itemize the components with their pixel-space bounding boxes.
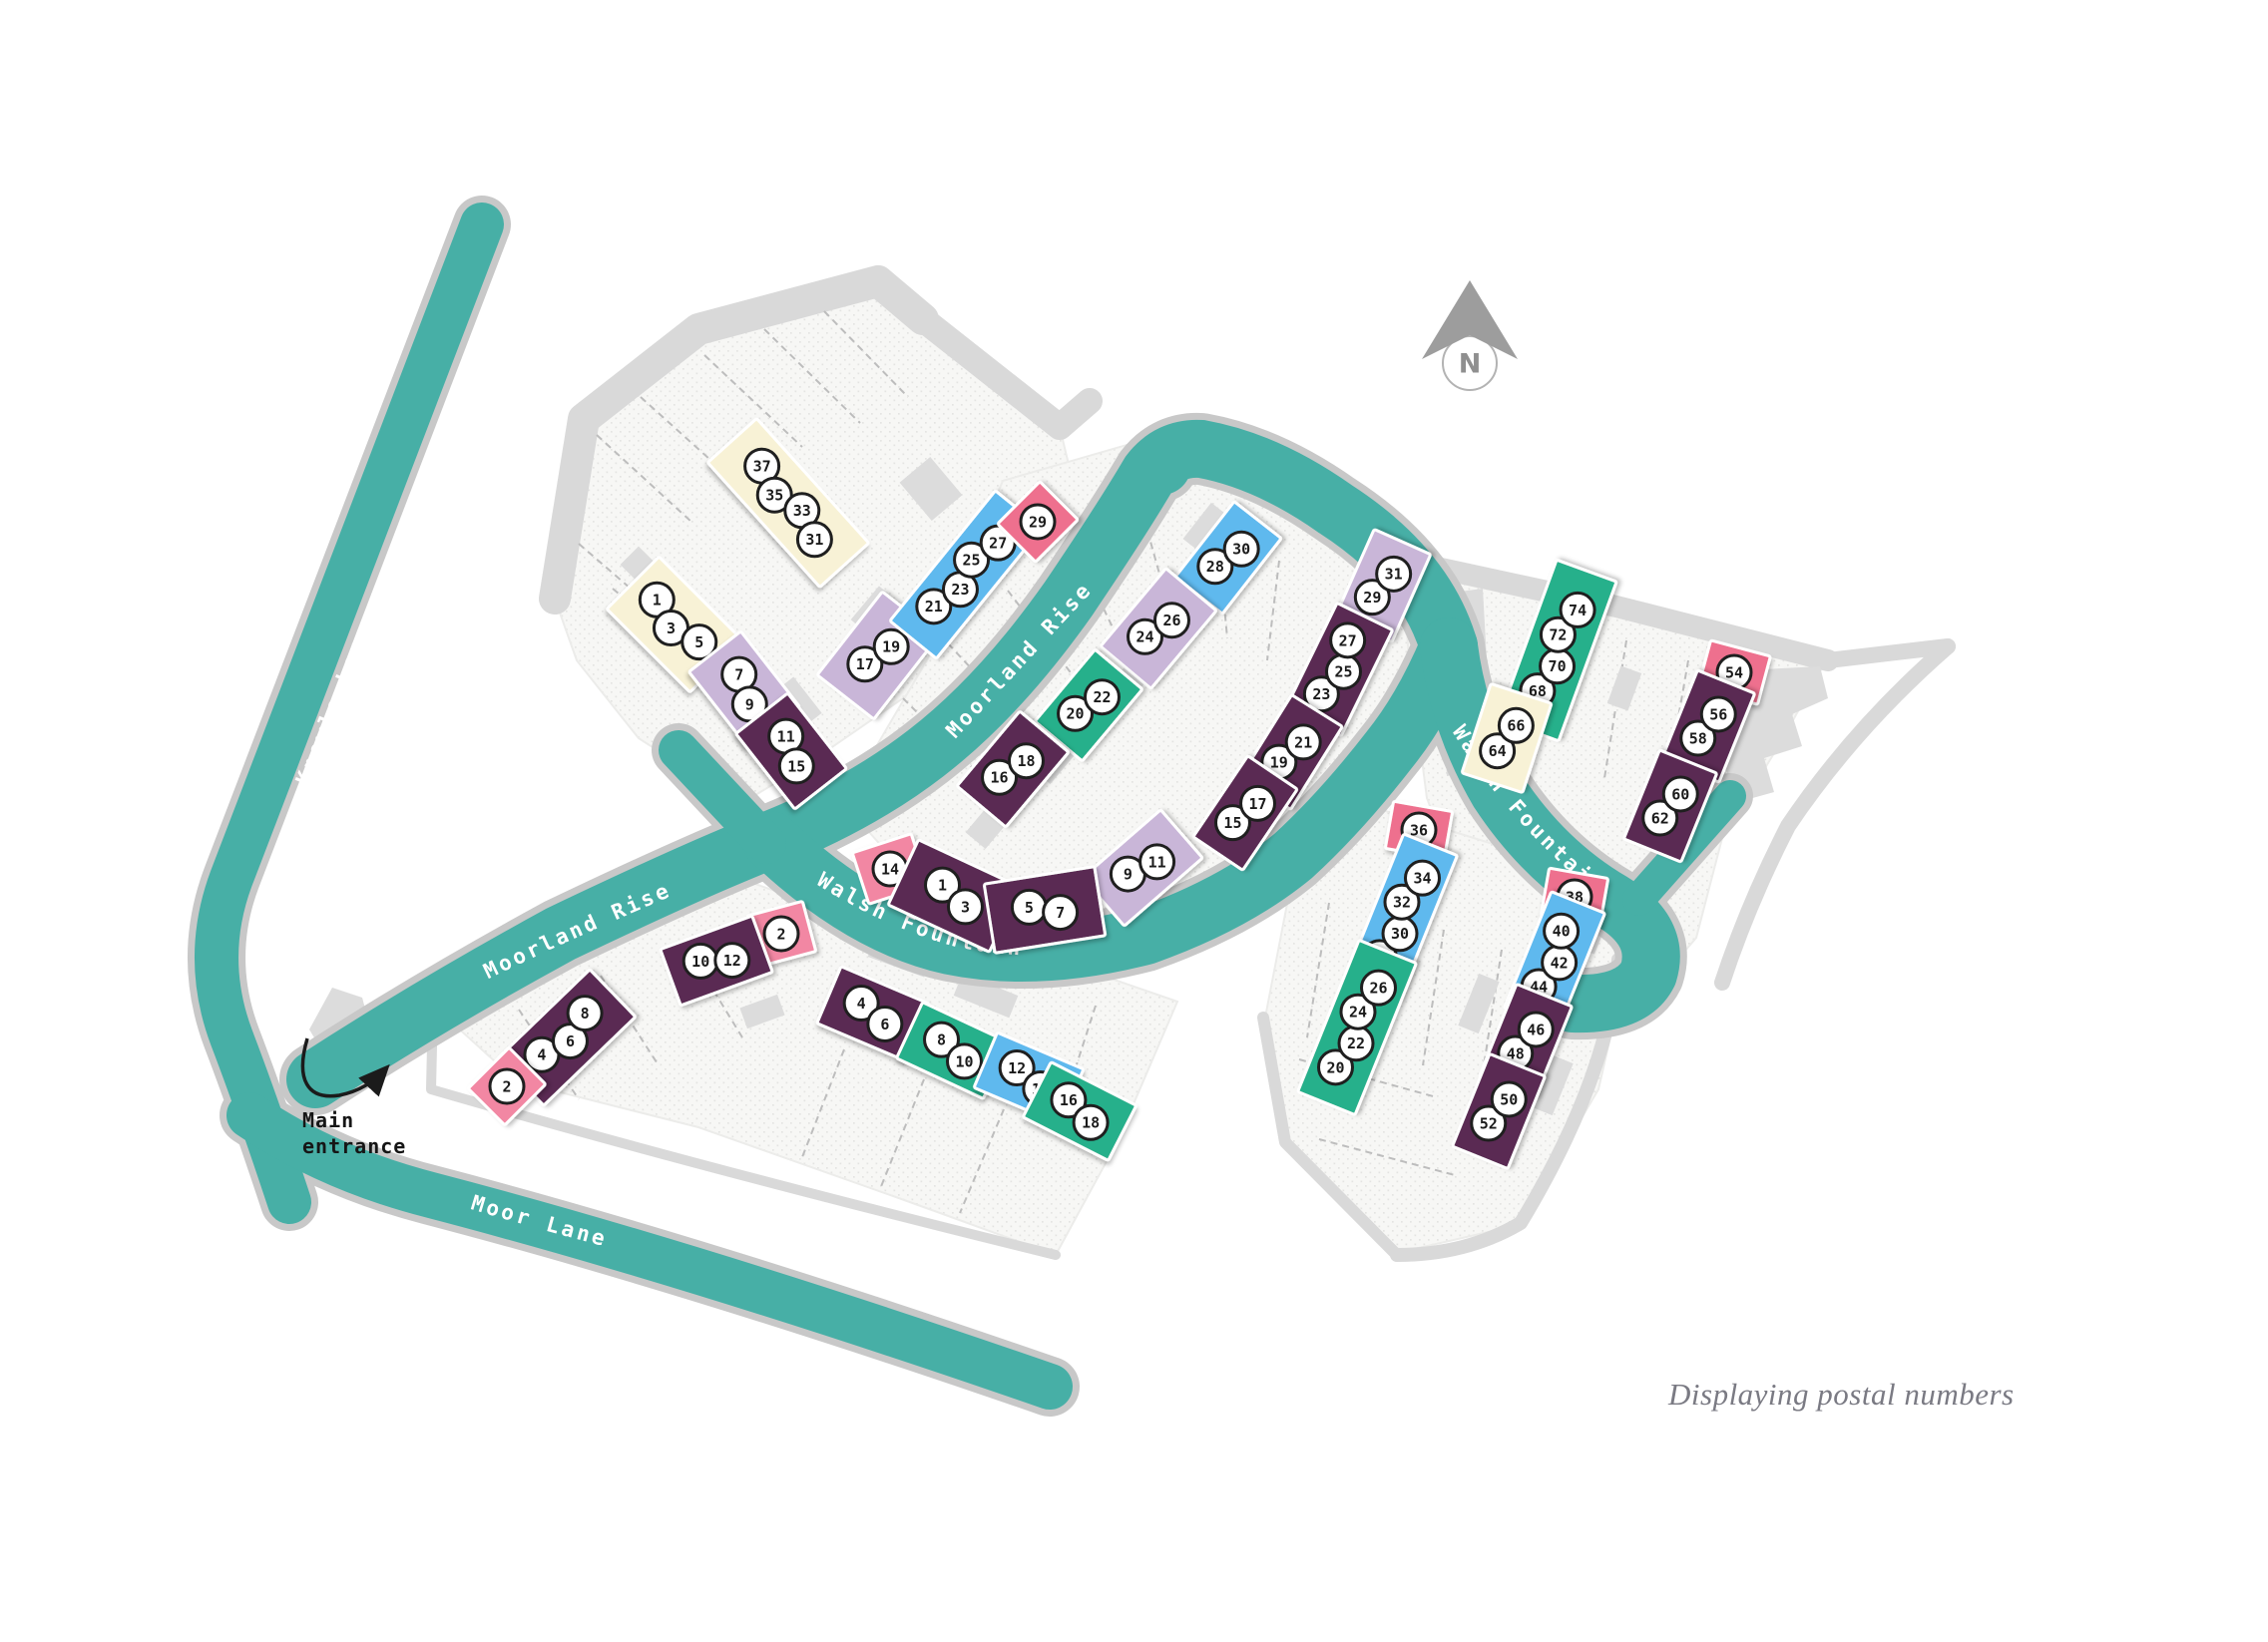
plot-badge: 6 <box>868 1007 902 1040</box>
badge-number: 42 <box>1551 954 1569 972</box>
badge-number: 1 <box>653 592 662 610</box>
plot-badge: 22 <box>1339 1026 1373 1060</box>
north-arrow: N <box>1422 280 1518 390</box>
plot-badge: 30 <box>1383 917 1417 951</box>
badge-number: 64 <box>1489 742 1507 760</box>
plot-badge: 30 <box>1224 532 1258 566</box>
plot-badge: 19 <box>874 629 908 663</box>
badge-number: 28 <box>1206 558 1224 576</box>
badge-number: 35 <box>765 487 783 505</box>
badge-number: 4 <box>537 1046 546 1064</box>
plot-badge: 2 <box>490 1069 524 1103</box>
badge-number: 18 <box>1017 752 1035 770</box>
badge-number: 72 <box>1549 626 1567 644</box>
badge-number: 66 <box>1507 717 1525 735</box>
badge-number: 15 <box>1223 814 1241 832</box>
main-entrance-label: Main entrance <box>302 1107 406 1159</box>
badge-number: 12 <box>1008 1059 1026 1077</box>
badge-number: 22 <box>1347 1034 1365 1052</box>
badge-number: 40 <box>1553 923 1571 941</box>
badge-number: 54 <box>1725 663 1743 681</box>
plot-badge: 50 <box>1492 1082 1526 1116</box>
badge-number: 19 <box>882 638 900 656</box>
badge-number: 20 <box>1326 1058 1344 1076</box>
badge-number: 7 <box>734 666 743 684</box>
badge-number: 3 <box>961 898 970 916</box>
plot-badge: 70 <box>1541 649 1575 683</box>
plot-badge: 27 <box>1331 623 1365 657</box>
badge-number: 5 <box>694 633 703 651</box>
badge-number: 6 <box>880 1016 889 1033</box>
badge-number: 26 <box>1369 980 1387 998</box>
badge-number: 16 <box>990 769 1008 787</box>
plot-badge: 26 <box>1154 604 1188 637</box>
badge-number: 30 <box>1391 925 1409 943</box>
plot-badge: 21 <box>1286 725 1320 759</box>
plot-badge: 8 <box>568 997 602 1030</box>
badge-number: 3 <box>667 619 676 637</box>
badge-number: 19 <box>1270 753 1288 771</box>
badge-number: 2 <box>502 1077 511 1095</box>
plot-badge: 3 <box>948 890 982 924</box>
badge-number: 8 <box>581 1005 590 1023</box>
badge-number: 58 <box>1689 729 1707 747</box>
plot-badge: 7 <box>1044 896 1078 930</box>
badge-number: 17 <box>856 655 874 673</box>
badge-number: 22 <box>1093 688 1111 706</box>
badge-number: 70 <box>1549 657 1567 675</box>
badge-number: 11 <box>1148 853 1166 871</box>
plot-badge: 26 <box>1361 971 1395 1005</box>
badge-number: 21 <box>1294 733 1312 751</box>
plot-badge: 5 <box>1012 890 1046 924</box>
badge-number: 31 <box>1385 566 1403 584</box>
badge-number: 29 <box>1363 589 1381 607</box>
plot-badge: 60 <box>1663 777 1697 811</box>
badge-number: 32 <box>1393 894 1411 912</box>
badge-number: 33 <box>793 502 811 520</box>
badge-number: 37 <box>753 458 771 476</box>
badge-number: 7 <box>1056 904 1065 922</box>
badge-number: 1 <box>938 877 947 895</box>
badge-number: 8 <box>937 1031 946 1049</box>
badge-number: 4 <box>857 995 866 1013</box>
badge-number: 27 <box>989 535 1007 553</box>
display-mode-note: Displaying postal numbers <box>1668 1377 2015 1413</box>
plot-badge: 2 <box>764 917 798 951</box>
badge-number: 31 <box>805 531 823 549</box>
badge-number: 9 <box>1124 865 1133 883</box>
badge-number: 5 <box>1025 899 1034 917</box>
plot-badge: 74 <box>1561 593 1594 626</box>
badge-number: 21 <box>925 598 943 616</box>
badge-number: 50 <box>1500 1090 1518 1108</box>
badge-number: 46 <box>1527 1021 1545 1038</box>
badge-number: 25 <box>963 552 981 570</box>
plot-badge: 31 <box>797 523 831 557</box>
plot-badge: 18 <box>1009 744 1043 778</box>
plot-badge: 11 <box>1140 845 1174 879</box>
north-letter: N <box>1459 349 1482 380</box>
plot-badge: 25 <box>1326 654 1360 688</box>
badge-number: 20 <box>1066 705 1084 723</box>
badge-number: 24 <box>1349 1004 1367 1022</box>
badge-number: 60 <box>1671 785 1689 803</box>
plot-badge: 22 <box>1085 680 1119 714</box>
badge-number: 10 <box>691 953 709 971</box>
badge-number: 24 <box>1135 628 1153 646</box>
badge-number: 74 <box>1569 602 1587 619</box>
badge-number: 52 <box>1480 1114 1498 1132</box>
badge-number: 23 <box>951 581 969 599</box>
badge-number: 2 <box>776 925 785 943</box>
plot-badge: 17 <box>1241 786 1275 820</box>
plot-badge: 31 <box>1377 557 1411 591</box>
plot-badge: 66 <box>1499 708 1533 742</box>
badge-number: 27 <box>1339 631 1357 649</box>
badge-number: 16 <box>1060 1091 1078 1109</box>
badge-number: 34 <box>1413 870 1431 888</box>
site-plan: Knowle LaneMoorland RiseMoorland RiseWal… <box>0 0 2268 1642</box>
plot-badge: 29 <box>1021 505 1055 539</box>
badge-number: 17 <box>1249 795 1267 813</box>
badge-number: 10 <box>955 1052 973 1070</box>
badge-number: 11 <box>777 728 795 746</box>
badge-number: 26 <box>1162 612 1180 629</box>
badge-number: 30 <box>1232 541 1250 559</box>
plot-badge: 15 <box>779 749 813 783</box>
badge-number: 14 <box>881 860 899 878</box>
badge-number: 56 <box>1709 705 1727 723</box>
plot-badge: 10 <box>683 944 717 978</box>
badge-number: 15 <box>787 757 805 775</box>
plot-badge: 42 <box>1543 946 1577 980</box>
plot-badge: 40 <box>1545 914 1579 948</box>
badge-number: 29 <box>1029 513 1047 531</box>
badge-number: 6 <box>566 1032 575 1050</box>
badge-number: 12 <box>723 952 741 970</box>
badge-number: 18 <box>1082 1114 1100 1132</box>
badge-number: 25 <box>1334 663 1352 681</box>
plot-badge: 46 <box>1519 1013 1553 1046</box>
plot-badge: 12 <box>715 944 749 978</box>
plot-badge: 10 <box>947 1044 981 1078</box>
plot-badge: 18 <box>1074 1105 1108 1139</box>
plot-badge: 56 <box>1701 697 1735 731</box>
plot-badge: 34 <box>1405 861 1439 895</box>
badge-number: 23 <box>1312 685 1330 703</box>
badge-number: 9 <box>745 695 754 713</box>
badge-number: 62 <box>1651 809 1669 827</box>
